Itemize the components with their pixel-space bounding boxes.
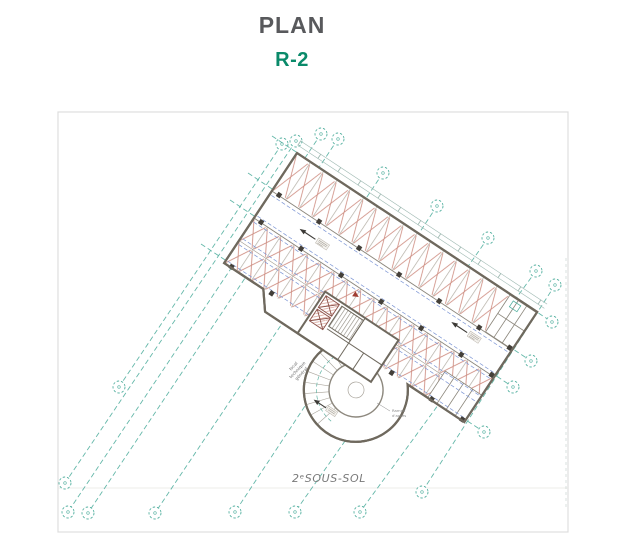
grid-marker: [332, 133, 344, 145]
grid-marker: [149, 507, 161, 519]
grid-marker: [525, 355, 537, 367]
grid-marker: [289, 506, 301, 518]
grid-marker: [482, 232, 494, 244]
grid-marker: [416, 486, 428, 498]
grid-marker: [546, 316, 558, 328]
grid-marker: [276, 138, 288, 150]
level-label: 2ᵉSOUS-SOL: [292, 472, 366, 485]
floor-plan: local technique général Rampe d'accès 2ᵉ…: [0, 0, 640, 546]
grid-marker: [549, 279, 561, 291]
grid-marker: [377, 167, 389, 179]
grid-marker: [478, 426, 490, 438]
grid-marker: [62, 506, 74, 518]
grid-marker: [315, 128, 327, 140]
grid-marker: [113, 381, 125, 393]
page: PLAN R-2: [0, 0, 640, 546]
grid-marker: [82, 507, 94, 519]
grid-marker: [507, 381, 519, 393]
grid-marker: [229, 506, 241, 518]
svg-text:d'accès: d'accès: [392, 413, 406, 418]
grid-marker: [530, 265, 542, 277]
grid-marker: [354, 506, 366, 518]
grid-marker: [431, 200, 443, 212]
grid-marker: [59, 477, 71, 489]
